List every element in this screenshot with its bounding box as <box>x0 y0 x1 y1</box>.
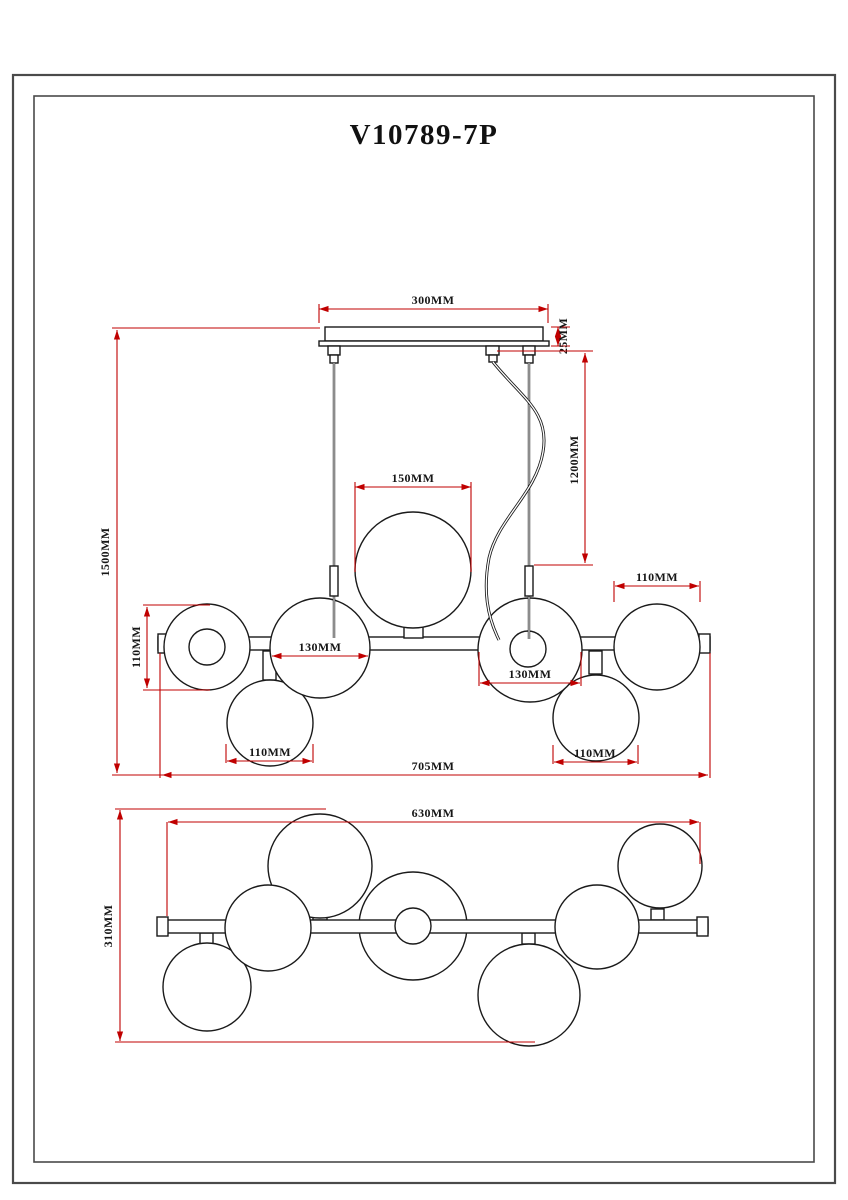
globe-mid-right <box>555 885 639 969</box>
ceiling-canopy <box>319 327 549 363</box>
dim-overall-width: 705MM <box>412 759 455 773</box>
dim-lower-left-globe: 110MM <box>249 745 291 759</box>
dim-left-globe: 110MM <box>129 626 143 668</box>
dim-center-globe: 150MM <box>392 471 435 485</box>
wire-adjuster-right <box>525 566 533 596</box>
globe-top-right <box>618 824 702 908</box>
globe-mid-left <box>225 885 311 971</box>
technical-drawing: V10789-7P <box>0 0 848 1200</box>
center-globe-150 <box>355 512 471 628</box>
upper-right-globe-110 <box>614 604 700 690</box>
dim-canopy-height: 25MM <box>556 318 570 354</box>
rod-end-cap-right <box>699 634 710 653</box>
dim-overall-depth: 310MM <box>101 905 115 948</box>
center-globe-socket <box>395 908 431 944</box>
rod-end-cap-left <box>157 917 168 936</box>
globe-bottom-right <box>478 944 580 1046</box>
rod-end-cap-right <box>697 917 708 936</box>
side-view: 300MM 25MM 1500MM 1200MM 150MM <box>98 293 710 778</box>
dim-bar-length: 630MM <box>412 806 455 820</box>
model-number: V10789-7P <box>350 119 499 151</box>
dim-overall-height: 1500MM <box>98 527 112 576</box>
dim-cord-length: 1200MM <box>567 435 581 484</box>
dim-left-center-globe: 130MM <box>299 640 342 654</box>
dim-right-center-globe: 130MM <box>509 667 552 681</box>
dim-upper-right-globe: 110MM <box>636 570 678 584</box>
dim-canopy-width: 300MM <box>412 293 455 307</box>
left-globe-110 <box>164 604 250 690</box>
wire-adjuster-left <box>330 566 338 596</box>
globe-holder <box>522 933 535 944</box>
dim-lower-right-globe: 110MM <box>574 746 616 760</box>
globe-holder <box>589 651 602 674</box>
drawing-sheet: V10789-7P <box>0 0 848 1200</box>
top-view: 630MM 310MM <box>101 806 708 1046</box>
globe-holder <box>651 909 664 920</box>
